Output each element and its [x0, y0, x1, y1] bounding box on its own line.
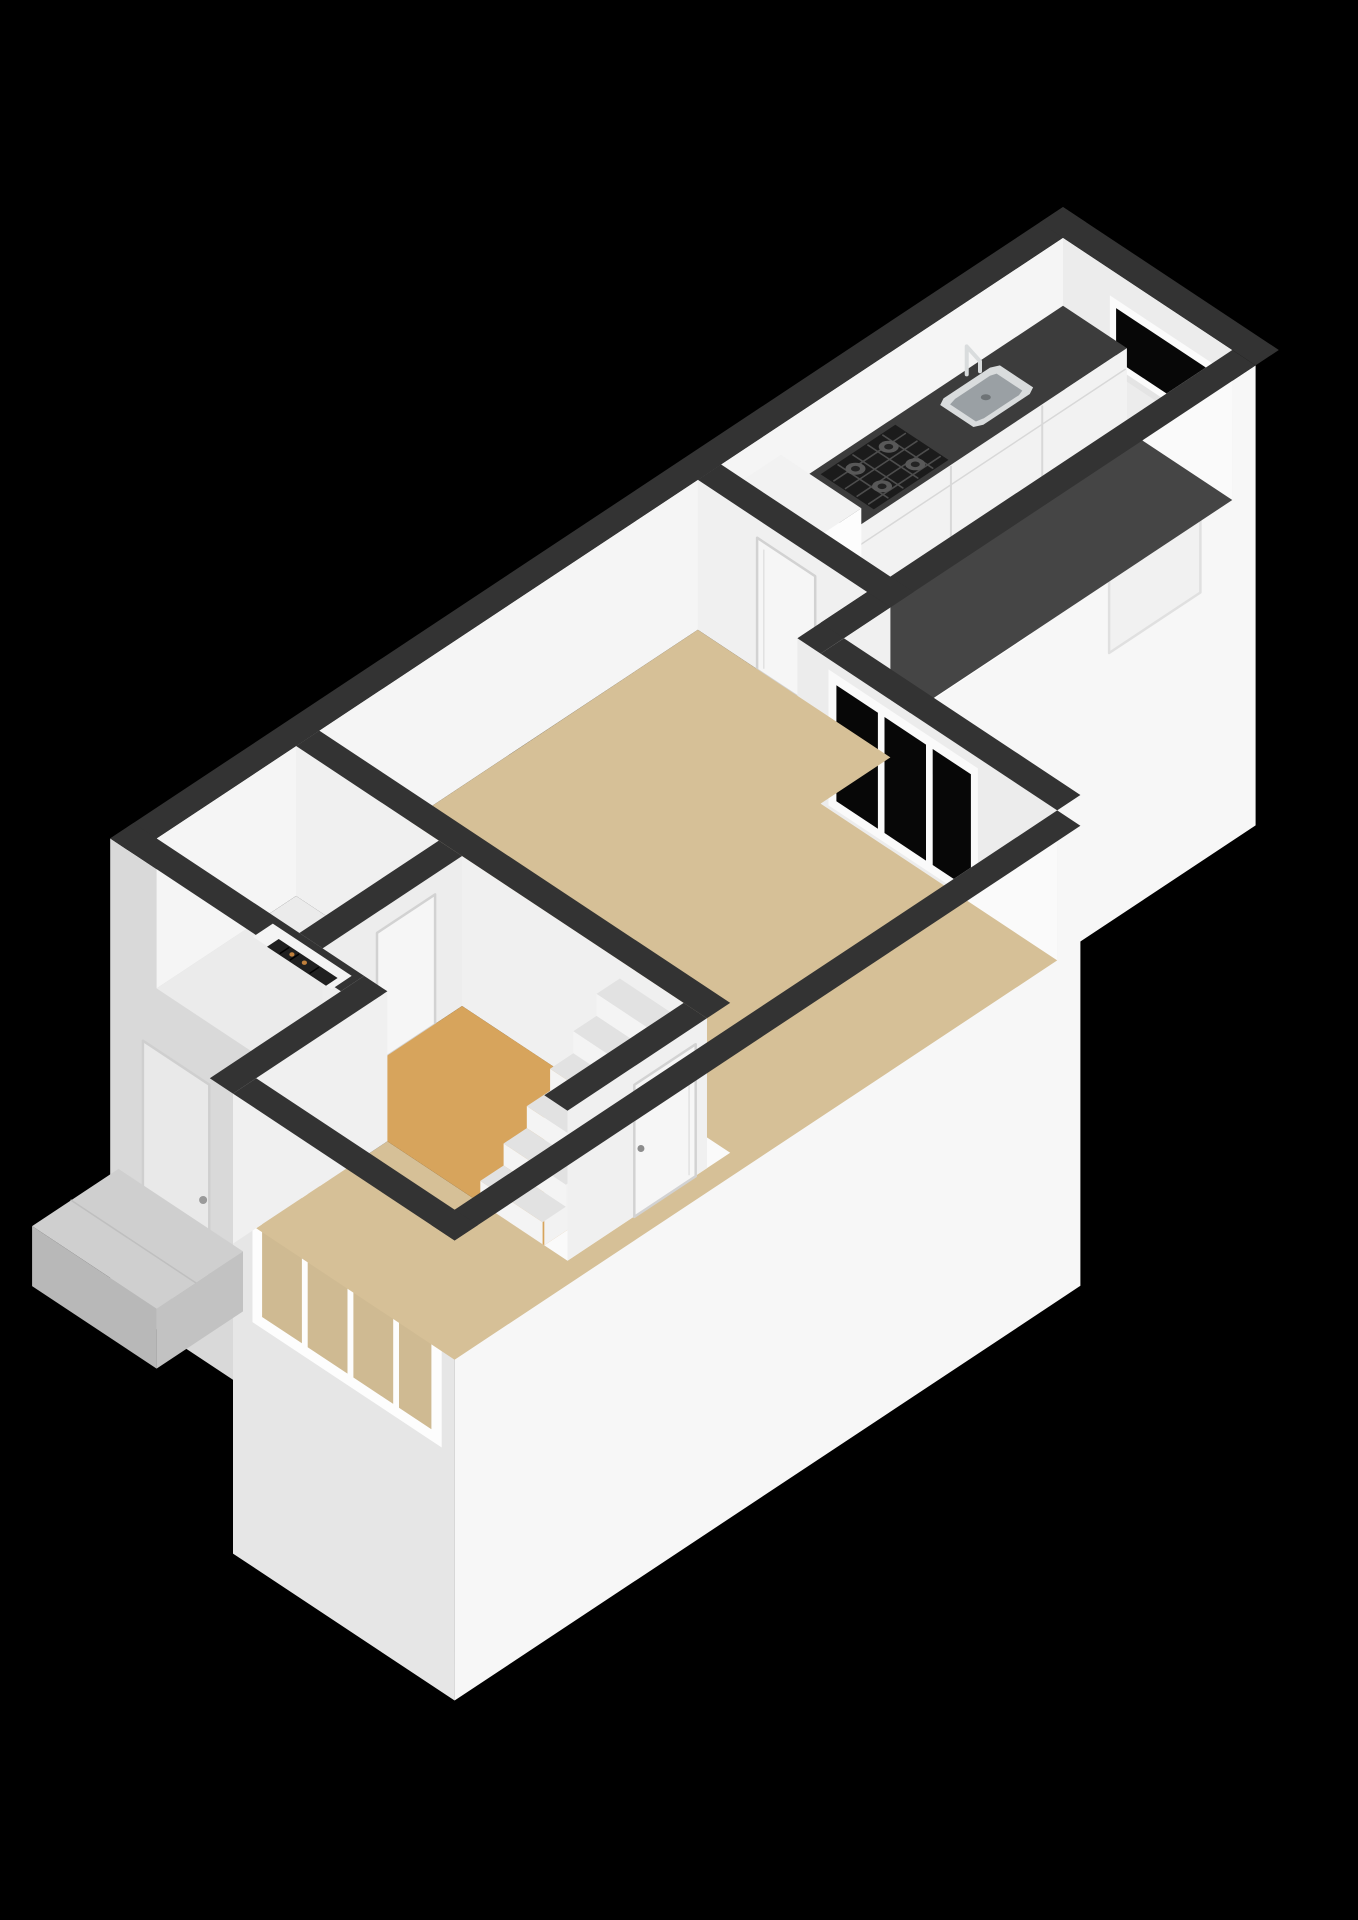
- hob-burner-center: [851, 466, 860, 472]
- living-room-door-handle-icon: [637, 1145, 644, 1152]
- heater-knob-icon: [289, 952, 294, 956]
- hob-burner-center: [878, 484, 887, 490]
- hob-burner-center: [911, 462, 920, 468]
- front-door-handle-icon: [199, 1196, 207, 1204]
- sink-drain-icon: [981, 394, 991, 400]
- heater-knob-icon: [302, 961, 307, 965]
- hob-burner-center: [884, 444, 893, 450]
- floorplan-3d-view: [0, 0, 1358, 1920]
- floorplan-svg: [0, 0, 1358, 1920]
